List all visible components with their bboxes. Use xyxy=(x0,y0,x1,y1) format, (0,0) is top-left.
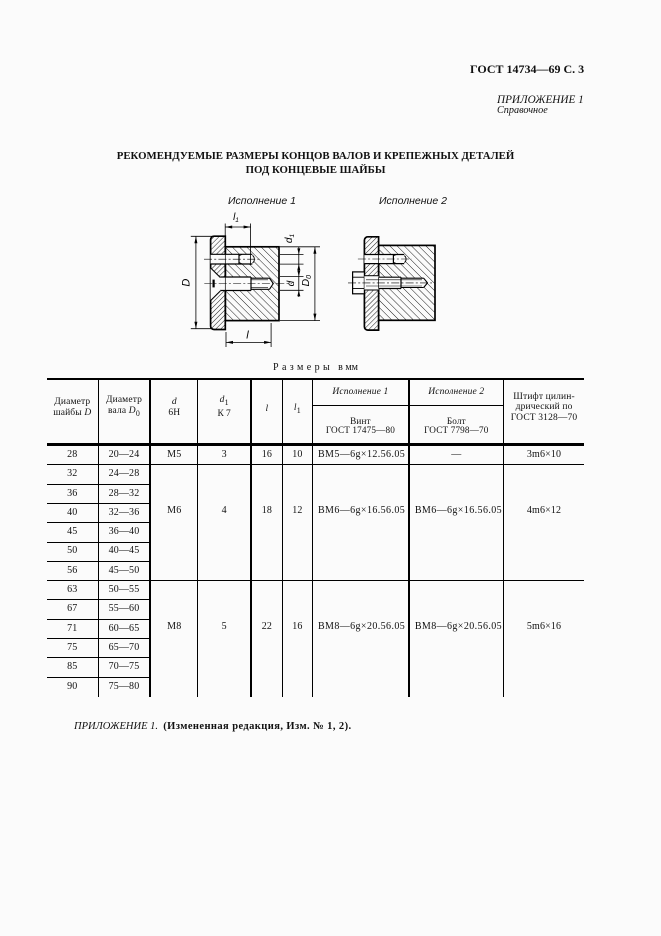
svg-text:l1: l1 xyxy=(233,212,239,224)
svg-text:D: D xyxy=(181,279,193,287)
svg-text:d: d xyxy=(286,280,297,286)
svg-text:l: l xyxy=(246,330,249,342)
svg-text:d1: d1 xyxy=(284,234,296,244)
